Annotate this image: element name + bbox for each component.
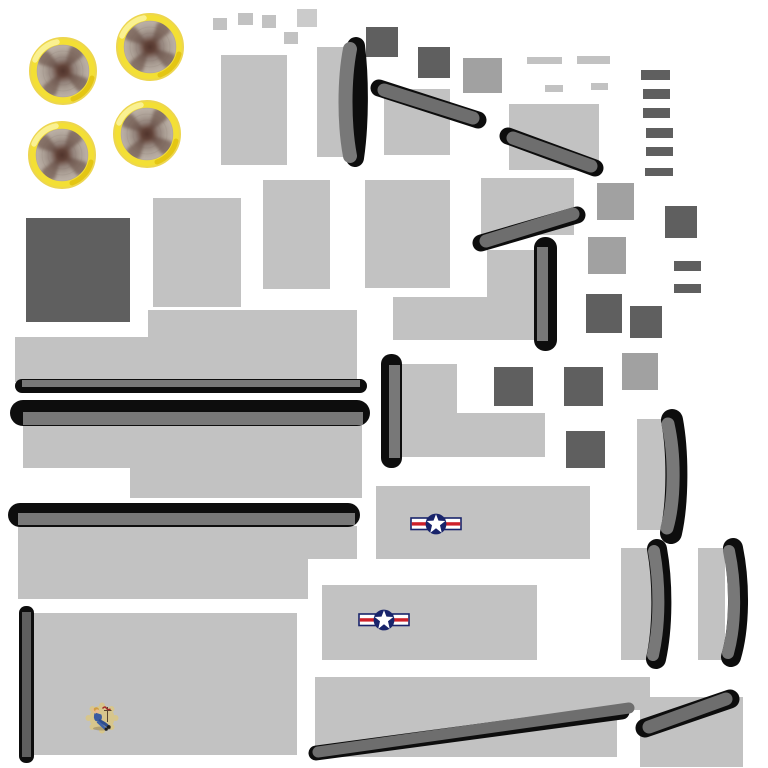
column-bar-5	[646, 147, 673, 156]
dark-square-3	[665, 206, 697, 238]
mid-step-bottom	[401, 413, 545, 457]
left-pole-gray	[22, 612, 31, 757]
wing1-main	[15, 337, 357, 382]
engine-propeller-texture-4	[114, 101, 181, 168]
roundel-panel-2	[322, 585, 537, 660]
crescent-right1-gray	[667, 424, 673, 528]
dark-big-square	[26, 218, 130, 322]
dark-square-8	[566, 431, 605, 468]
medium-square-4	[622, 353, 658, 390]
fuselage-panel-1	[221, 55, 287, 165]
dash-4	[591, 83, 608, 90]
crescent-top-gray	[346, 49, 351, 156]
vertical-edge2-gray	[389, 365, 400, 458]
nose-art-pinup	[86, 703, 119, 734]
dash-3	[545, 85, 563, 92]
engine-propeller-texture-1	[30, 38, 97, 105]
small-square-1	[213, 18, 227, 30]
dark-square-7	[564, 367, 603, 406]
fuselage-panel-4	[153, 198, 241, 307]
medium-square-1	[463, 58, 502, 93]
small-square-5	[284, 32, 298, 44]
dash-2	[577, 56, 610, 64]
vertical-edge1-gray	[537, 247, 548, 341]
wing3-edge-gray	[18, 513, 355, 525]
engine-propeller-texture-2	[117, 14, 184, 81]
dash-1	[527, 57, 562, 64]
wing3-main	[18, 559, 308, 599]
crescent-top-black	[355, 46, 359, 158]
dark-square-6	[494, 367, 533, 406]
wing2-left	[23, 425, 130, 468]
dark-square-4	[586, 294, 622, 333]
small-square-3	[262, 15, 276, 28]
wing2-main	[130, 425, 362, 498]
leading-edge-base-right2	[621, 548, 652, 660]
engine-propeller-texture-3	[29, 122, 96, 189]
column-bar-4	[646, 128, 673, 138]
column-bar-6	[645, 168, 673, 176]
dark-square-1	[366, 27, 398, 57]
texture-atlas-canvas	[0, 0, 768, 768]
crescent-right3-gray	[728, 551, 734, 653]
small-square-4	[297, 9, 317, 27]
mid-step-top	[401, 364, 457, 413]
small-bar-2	[674, 284, 701, 293]
column-bar-2	[643, 89, 670, 99]
bottom-left-panel	[28, 613, 297, 755]
small-bar-1	[674, 261, 701, 271]
fuselage-panel-5	[263, 180, 330, 289]
medium-square-2	[597, 183, 634, 220]
roundel-panel-1	[376, 486, 590, 559]
mid-lshape-top	[487, 250, 535, 297]
dark-square-2	[418, 47, 450, 78]
crescent-right2-gray	[653, 551, 658, 655]
fuselage-panel-6	[365, 180, 450, 288]
mid-lshape-bottom	[393, 297, 557, 340]
wing1-top	[148, 310, 357, 337]
medium-square-3	[588, 237, 626, 274]
column-bar-3	[643, 108, 670, 118]
aircraft-texture-atlas	[0, 0, 768, 768]
wing3-top	[18, 526, 357, 559]
wing1-edge-gray	[22, 380, 360, 387]
wing2-edge-gray	[23, 412, 363, 425]
small-square-2	[238, 13, 253, 25]
leading-edge-base-right3	[698, 548, 725, 660]
column-bar-1	[641, 70, 670, 80]
dark-square-5	[630, 306, 662, 338]
